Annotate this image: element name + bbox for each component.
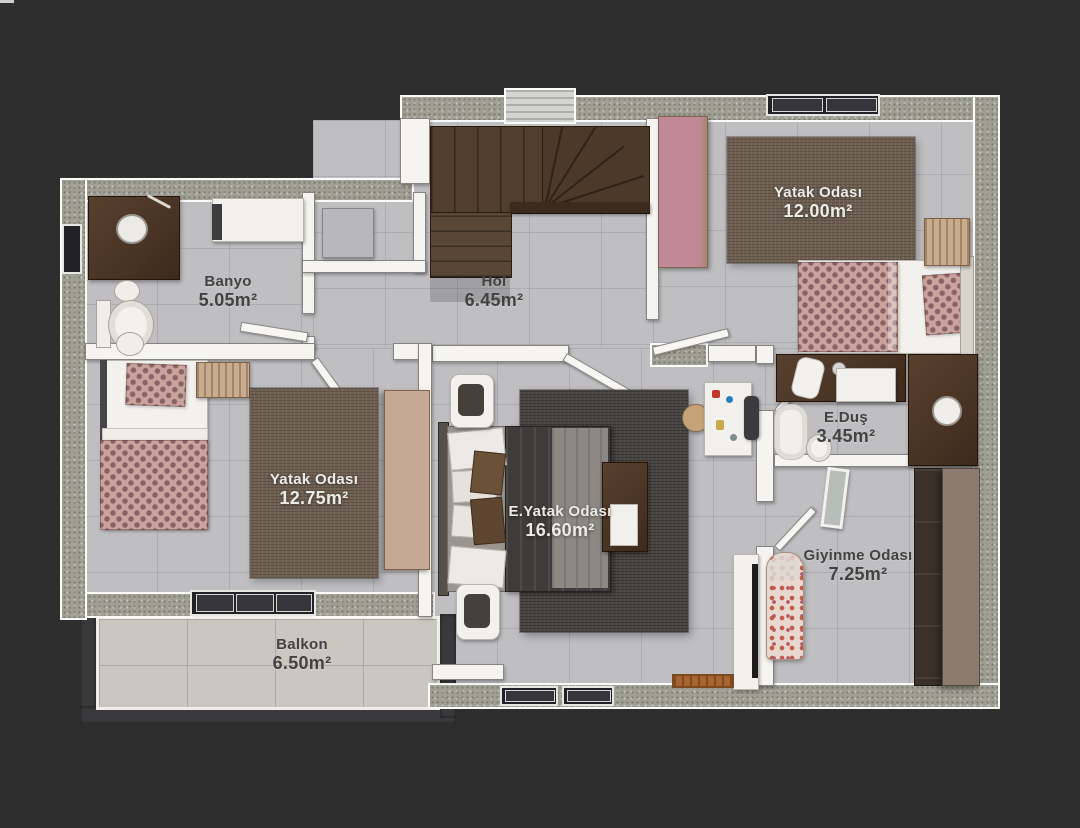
edus-toilet xyxy=(806,434,832,462)
bedroom2-duvet xyxy=(100,440,208,530)
edus-vanity-sink xyxy=(932,396,962,426)
window-pane xyxy=(567,690,611,702)
washing-machine xyxy=(212,198,304,242)
dressing-table-item xyxy=(730,434,737,441)
exterior-wall-balcony-left xyxy=(85,592,193,618)
master-duvet-light-section xyxy=(552,428,608,588)
bedroom1-headboard xyxy=(960,256,974,356)
window-master-bottom-2 xyxy=(562,686,614,706)
master-tv xyxy=(752,564,758,678)
ironing-board-top xyxy=(768,554,800,580)
window-master-bottom-1 xyxy=(500,686,558,706)
edus-shower-tray xyxy=(836,368,896,402)
dressing-table-item xyxy=(726,396,733,403)
staircase-upper-flight xyxy=(430,126,544,214)
dressing-table-item xyxy=(716,420,724,430)
bedroom1-duvet-fold xyxy=(888,262,896,350)
master-nightstand-top-tray xyxy=(458,384,484,416)
room-balkon-floor xyxy=(96,616,440,710)
bedroom1-wicker-dresser xyxy=(924,218,970,266)
balcony-railing-left xyxy=(80,614,96,718)
washing-machine-panel xyxy=(212,204,222,240)
stair-railing xyxy=(510,202,650,213)
window-balcony-door xyxy=(190,590,316,616)
master-pillow xyxy=(447,546,506,589)
master-chair xyxy=(744,396,759,440)
giyinme-wardrobe-dark xyxy=(914,468,944,686)
chimney-shaft xyxy=(504,88,576,124)
window-pane xyxy=(826,98,877,112)
bedroom2-rug xyxy=(250,388,378,578)
bidet xyxy=(116,332,144,356)
dressing-table-item xyxy=(712,390,720,398)
stair-outer-wall xyxy=(400,118,430,184)
bedroom1-wardrobe xyxy=(658,116,708,268)
bedroom2-pillow xyxy=(125,363,186,407)
bedroom1-rug xyxy=(727,137,915,263)
banyo-vanity-sink xyxy=(116,214,148,244)
giyinme-wardrobe-taupe xyxy=(942,468,980,686)
master-cushion xyxy=(470,450,506,495)
hand-sink xyxy=(114,280,140,302)
edus-shower xyxy=(774,404,808,460)
master-nightstand-bottom-tray xyxy=(464,594,490,628)
bedroom1-duvet xyxy=(798,262,898,352)
doormat xyxy=(672,674,734,688)
window-pane xyxy=(196,594,234,612)
window-banyo-left xyxy=(62,224,82,274)
master-bench-tray xyxy=(610,504,638,546)
window-pane xyxy=(236,594,274,612)
wall-master-right-top xyxy=(756,345,774,364)
edus-faucet xyxy=(0,0,14,3)
window-pane xyxy=(772,98,823,112)
wall-hol-bottom-right xyxy=(708,345,756,362)
wall-niche-bottom xyxy=(302,260,426,273)
master-cushion xyxy=(470,497,506,546)
staircase-winders xyxy=(542,126,650,214)
window-bedroom1-top xyxy=(766,94,880,116)
floor-plan: Banyo 5.05m² Hol 6.45m² Yatak Odası 12.0… xyxy=(0,0,1080,828)
storage-box xyxy=(322,208,374,258)
staircase-lower-flight xyxy=(430,212,512,278)
wall-master-ledge xyxy=(432,664,504,680)
bedroom2-wardrobe xyxy=(384,390,430,570)
exterior-wall-balcony-right xyxy=(313,592,435,618)
window-pane xyxy=(505,690,555,702)
bedroom2-ottoman xyxy=(196,362,250,398)
staircase-shadow xyxy=(430,276,510,302)
wall-hol-bottom xyxy=(432,345,569,362)
window-pane xyxy=(276,594,312,612)
